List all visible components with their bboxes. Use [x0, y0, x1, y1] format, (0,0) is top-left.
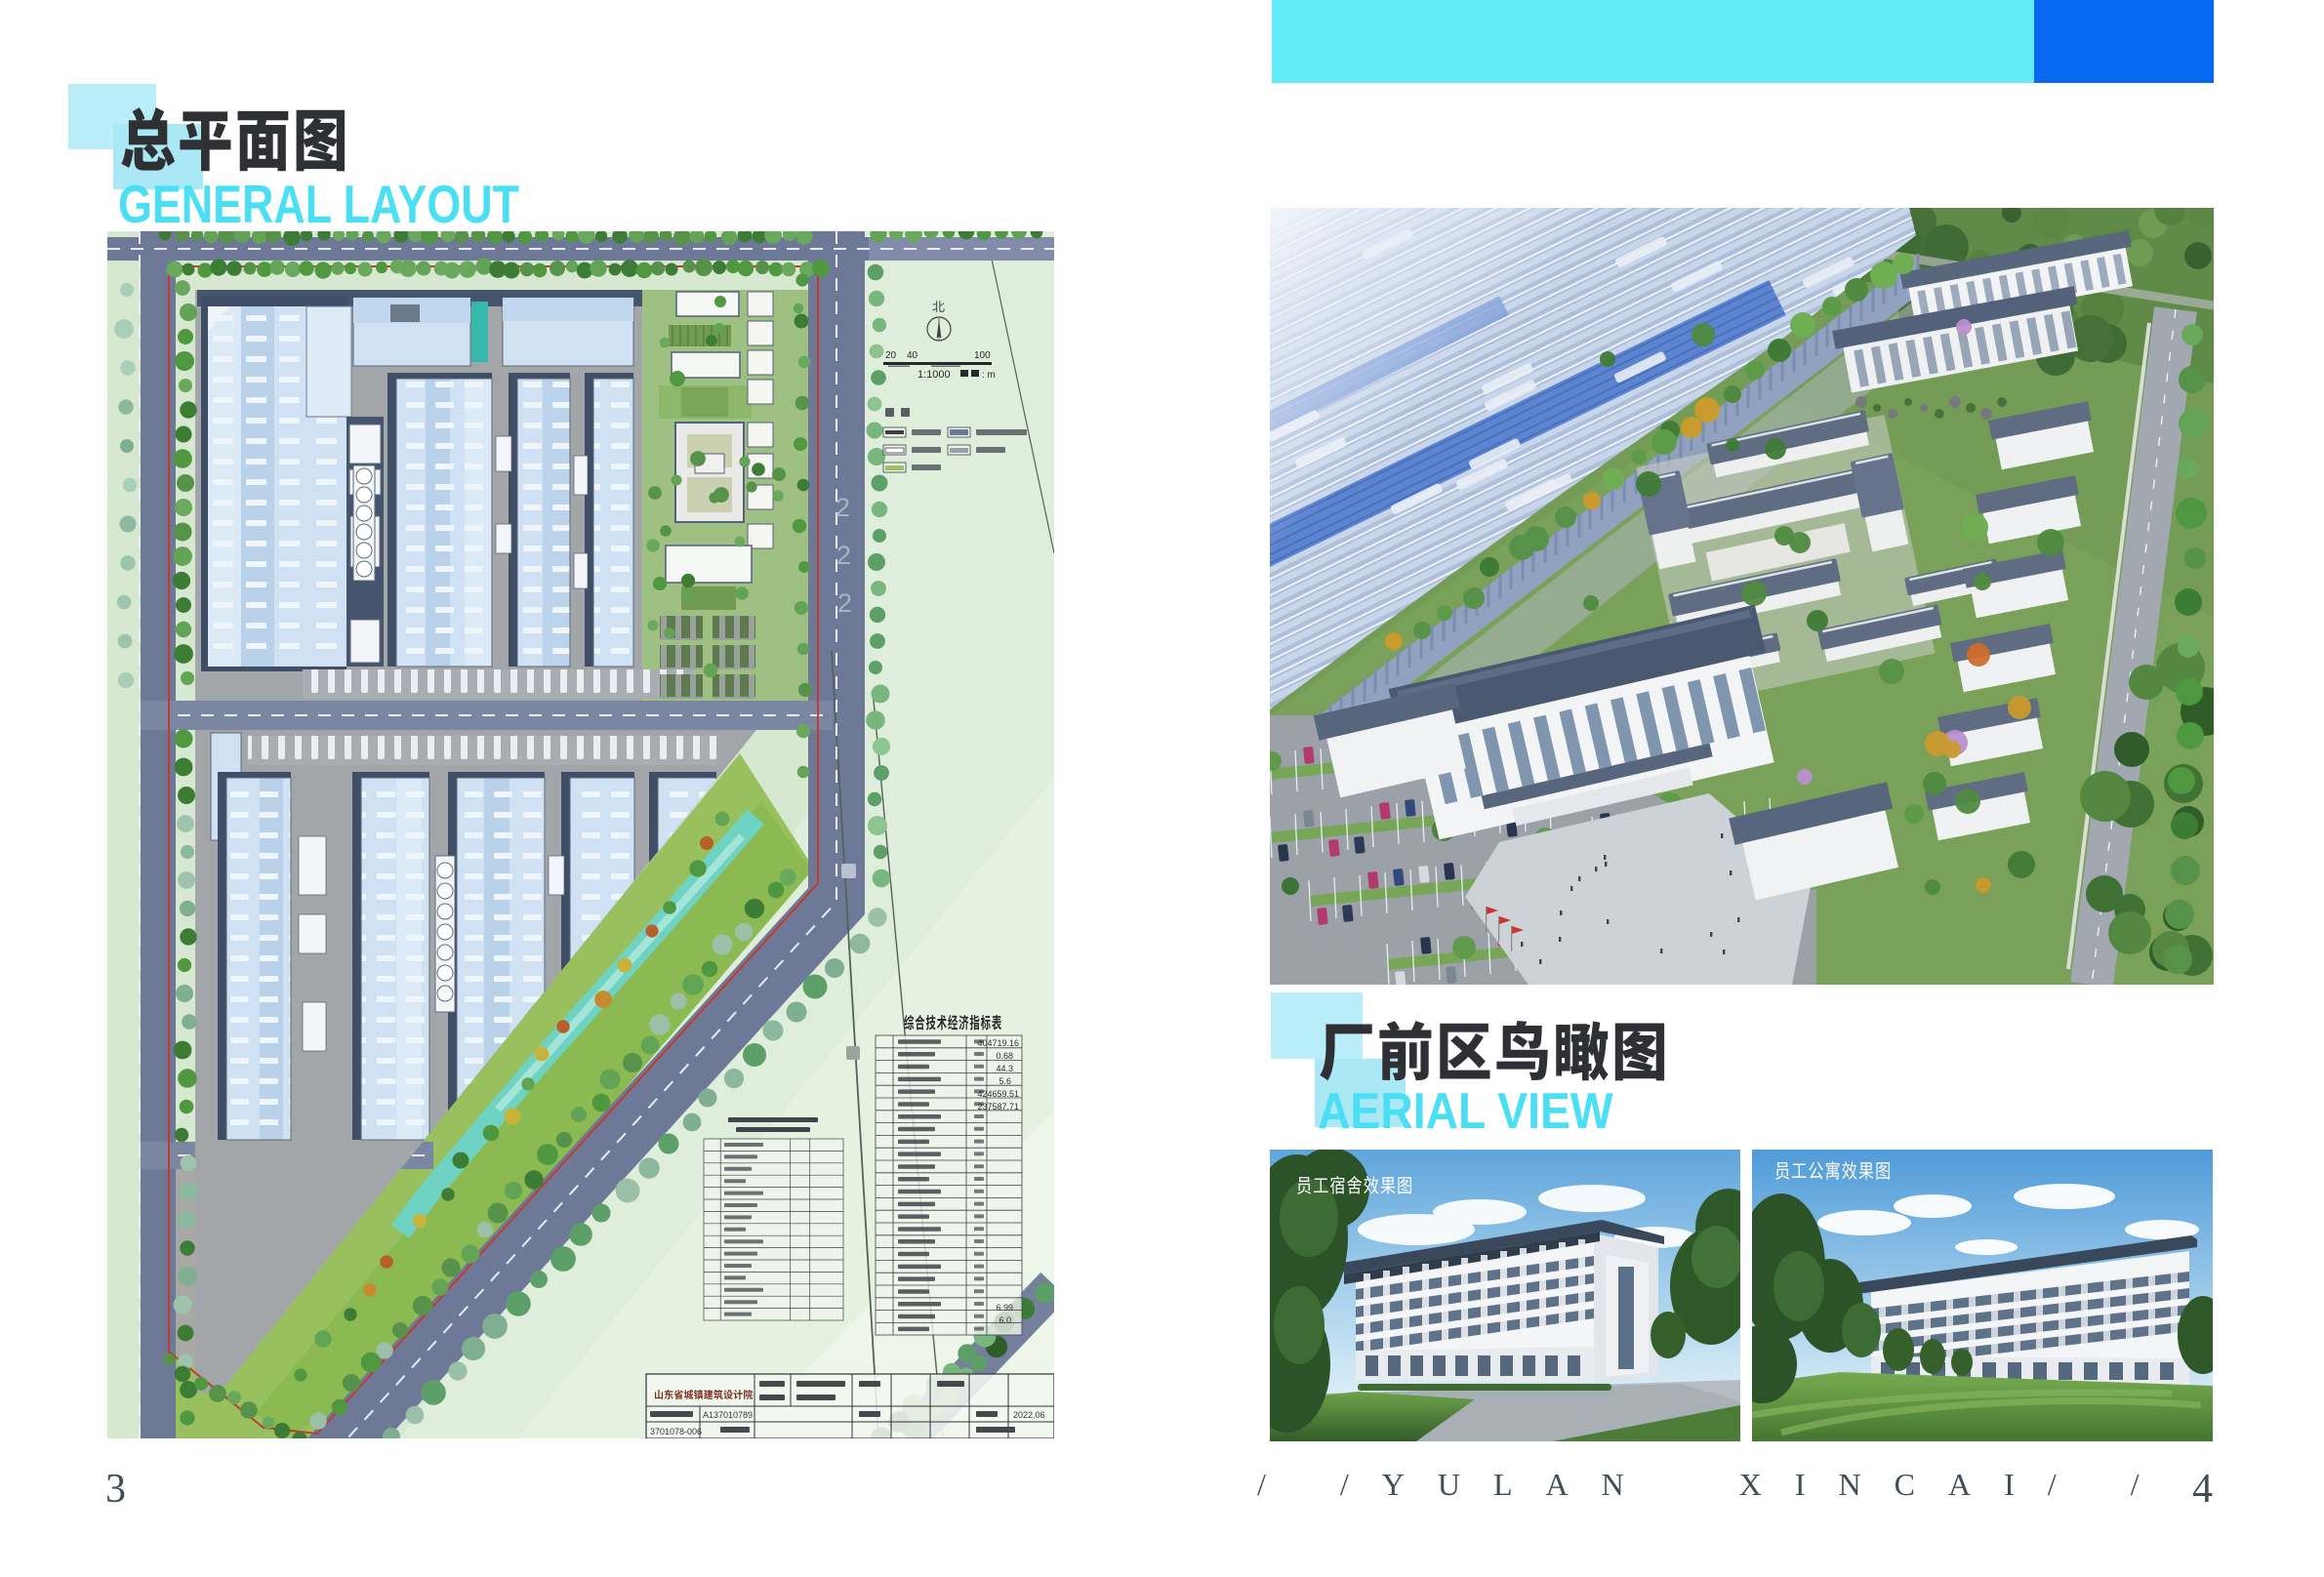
svg-text:40: 40 [907, 350, 918, 361]
svg-text:100: 100 [974, 350, 991, 361]
svg-text:: m: : m [982, 370, 996, 381]
svg-text:6.99: 6.99 [996, 1303, 1013, 1313]
svg-text:0.68: 0.68 [996, 1051, 1013, 1061]
svg-text:1:1000: 1:1000 [917, 369, 951, 381]
svg-text:2: 2 [837, 588, 852, 618]
svg-text:424659.51: 424659.51 [977, 1089, 1019, 1099]
svg-text:5.6: 5.6 [999, 1076, 1011, 1086]
svg-text:6.0: 6.0 [999, 1315, 1011, 1325]
svg-text:404719.16: 404719.16 [977, 1038, 1019, 1048]
svg-text:2022.06: 2022.06 [1013, 1410, 1045, 1420]
svg-text:20: 20 [885, 350, 897, 361]
svg-text:237587.71: 237587.71 [977, 1102, 1019, 1112]
svg-text:2: 2 [836, 541, 851, 570]
svg-text:A137010789: A137010789 [703, 1410, 753, 1420]
svg-text:2: 2 [836, 493, 850, 522]
svg-text:44.3: 44.3 [996, 1064, 1013, 1073]
svg-text:3701078-006: 3701078-006 [650, 1427, 702, 1436]
